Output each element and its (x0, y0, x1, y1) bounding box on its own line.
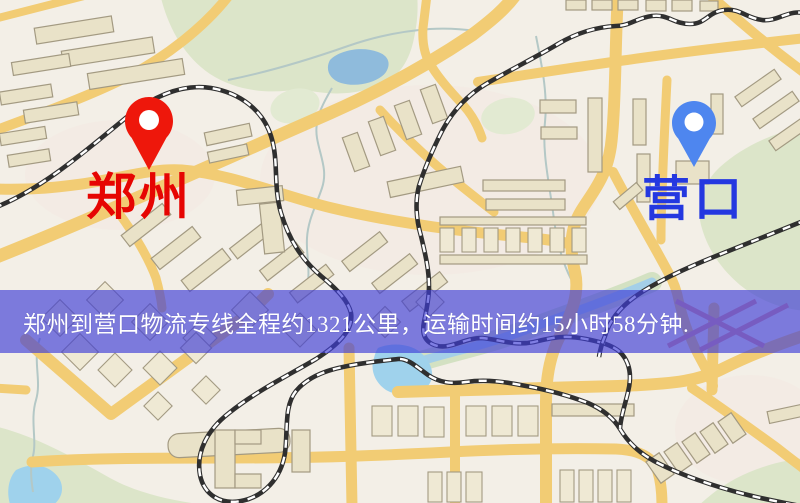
route-info-text: 郑州到营口物流专线全程约1321公里，运输时间约15小时58分钟. (23, 305, 689, 339)
destination-city-label: 营口 (642, 176, 746, 224)
map-screenshot: 郑州到营口物流专线全程约1321公里，运输时间约15小时58分钟. 郑州 营口 (0, 0, 800, 503)
origin-city-label: 郑州 (86, 172, 192, 222)
route-info-banner: 郑州到营口物流专线全程约1321公里，运输时间约15小时58分钟. (0, 290, 800, 353)
map-image[interactable] (0, 0, 800, 503)
